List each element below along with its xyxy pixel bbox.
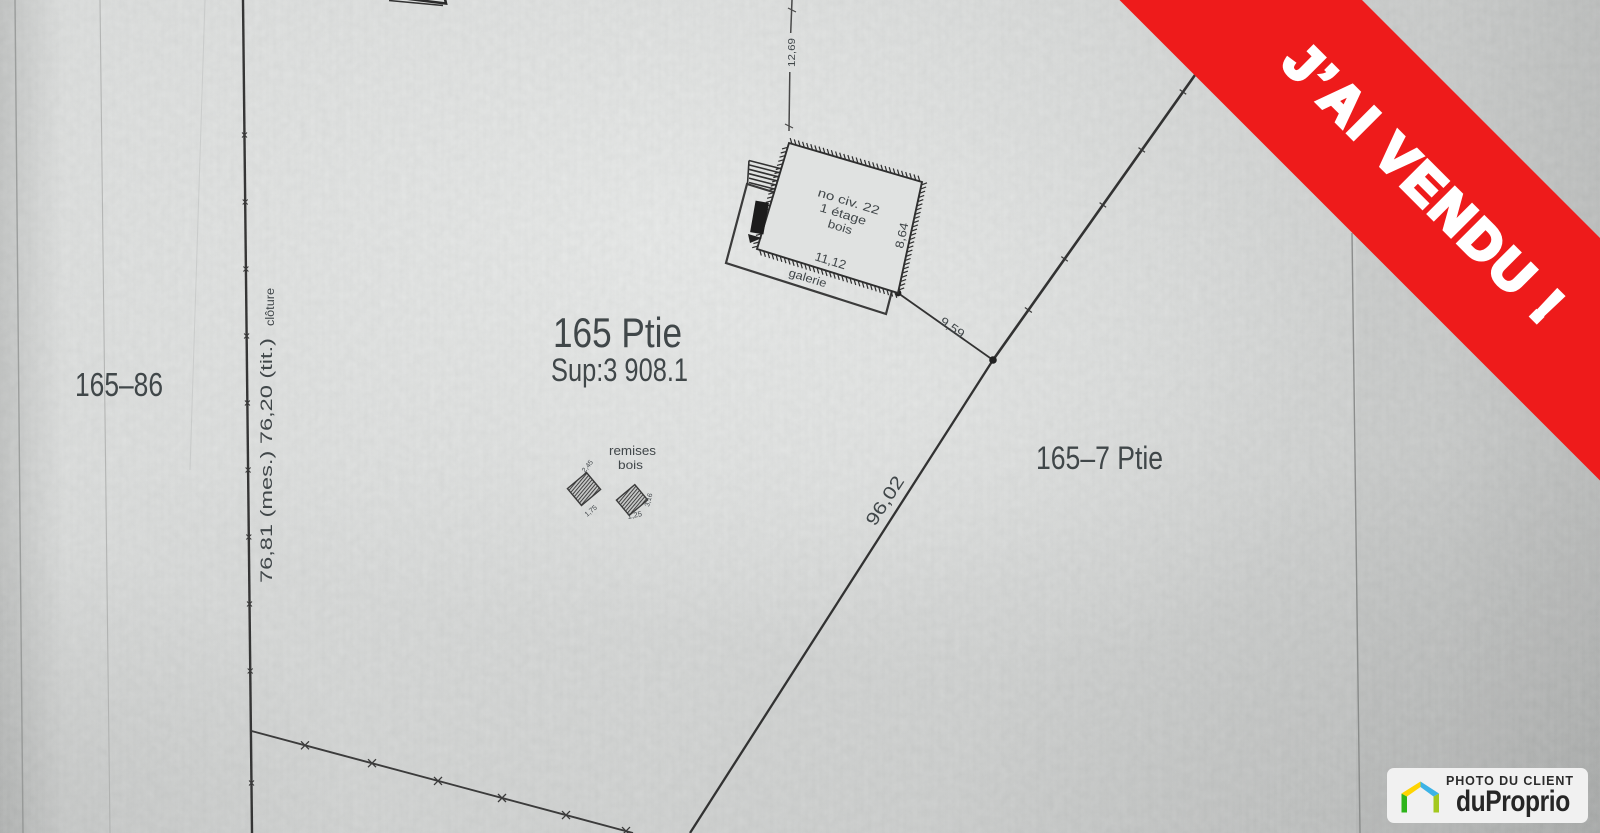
svg-text:remises: remises [609,443,657,458]
svg-text:Sup:3 908.1: Sup:3 908.1 [551,352,688,388]
svg-text:12,69: 12,69 [786,38,798,67]
svg-text:76,81 (mes.) 76,20 (tit.): 76,81 (mes.) 76,20 (tit.) [257,338,276,583]
svg-text:bois: bois [618,458,643,472]
svg-text:165 Ptie: 165 Ptie [553,309,682,356]
svg-text:165–86: 165–86 [75,366,163,403]
svg-text:165–7 Ptie: 165–7 Ptie [1036,440,1163,476]
svg-text:clôture: clôture [265,288,277,326]
